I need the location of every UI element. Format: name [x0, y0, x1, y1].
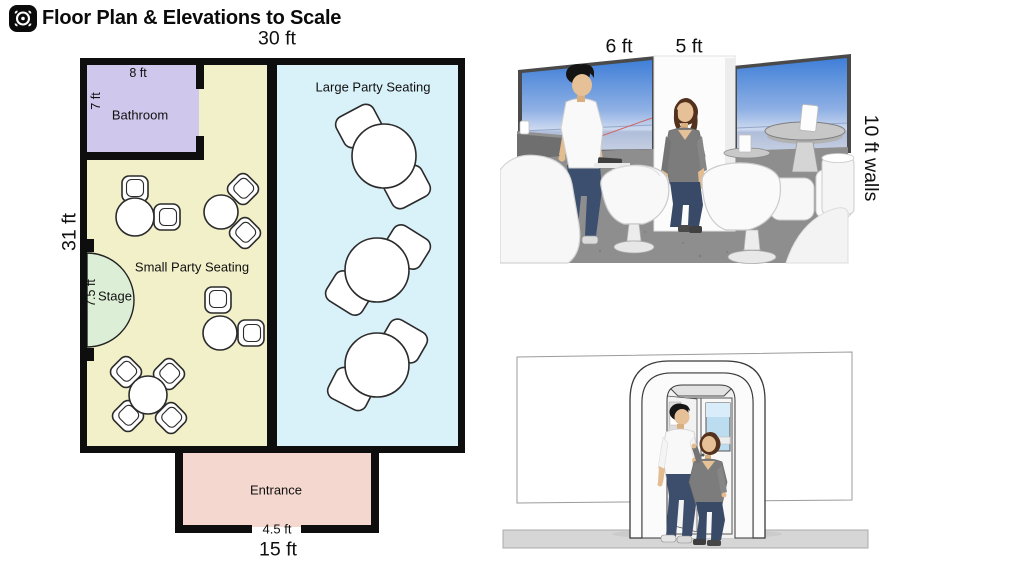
plan-width-dim: 30 ft — [258, 29, 296, 49]
plan-height-dim: 31 ft — [60, 213, 80, 251]
bathroom-depth-dim: 7 ft — [90, 92, 103, 109]
entrance-label: Entrance — [250, 484, 302, 497]
small-party-label: Small Party Seating — [135, 261, 249, 274]
stage-wall-nub — [87, 348, 94, 361]
small-table — [203, 316, 237, 350]
small-table — [129, 376, 167, 414]
divider-wall — [267, 58, 277, 453]
bathroom-label: Bathroom — [112, 109, 168, 122]
stage-label: Stage — [98, 290, 132, 303]
entrance-wall — [371, 450, 379, 533]
entrance-wall — [175, 525, 252, 533]
large-party-label: Large Party Seating — [316, 81, 431, 94]
interior-elevation-canvas[interactable] — [500, 45, 885, 270]
small-table — [116, 198, 154, 236]
man-height-dim: 6 ft — [605, 37, 632, 57]
entrance-wall — [175, 450, 183, 533]
large-table — [345, 333, 409, 397]
entrance-wall — [301, 525, 379, 533]
scan-target-icon — [8, 4, 38, 33]
entrance-width-dim: 15 ft — [259, 540, 297, 560]
bathroom-wall — [83, 152, 204, 160]
stage-wall-nub — [87, 239, 94, 252]
bathroom-wall — [196, 58, 204, 89]
stage-width-dim: 7.5 ft — [85, 279, 98, 307]
entrance-elevation-canvas[interactable] — [500, 345, 885, 560]
bathroom-width-dim: 8 ft — [129, 67, 146, 80]
woman-height-dim: 5 ft — [675, 37, 702, 57]
large-table — [345, 238, 409, 302]
small-table — [204, 195, 238, 229]
entrance-door-dim: 4.5 ft — [263, 523, 292, 536]
large-table — [352, 124, 416, 188]
wall-height-dim: 10 ft walls — [860, 115, 880, 202]
